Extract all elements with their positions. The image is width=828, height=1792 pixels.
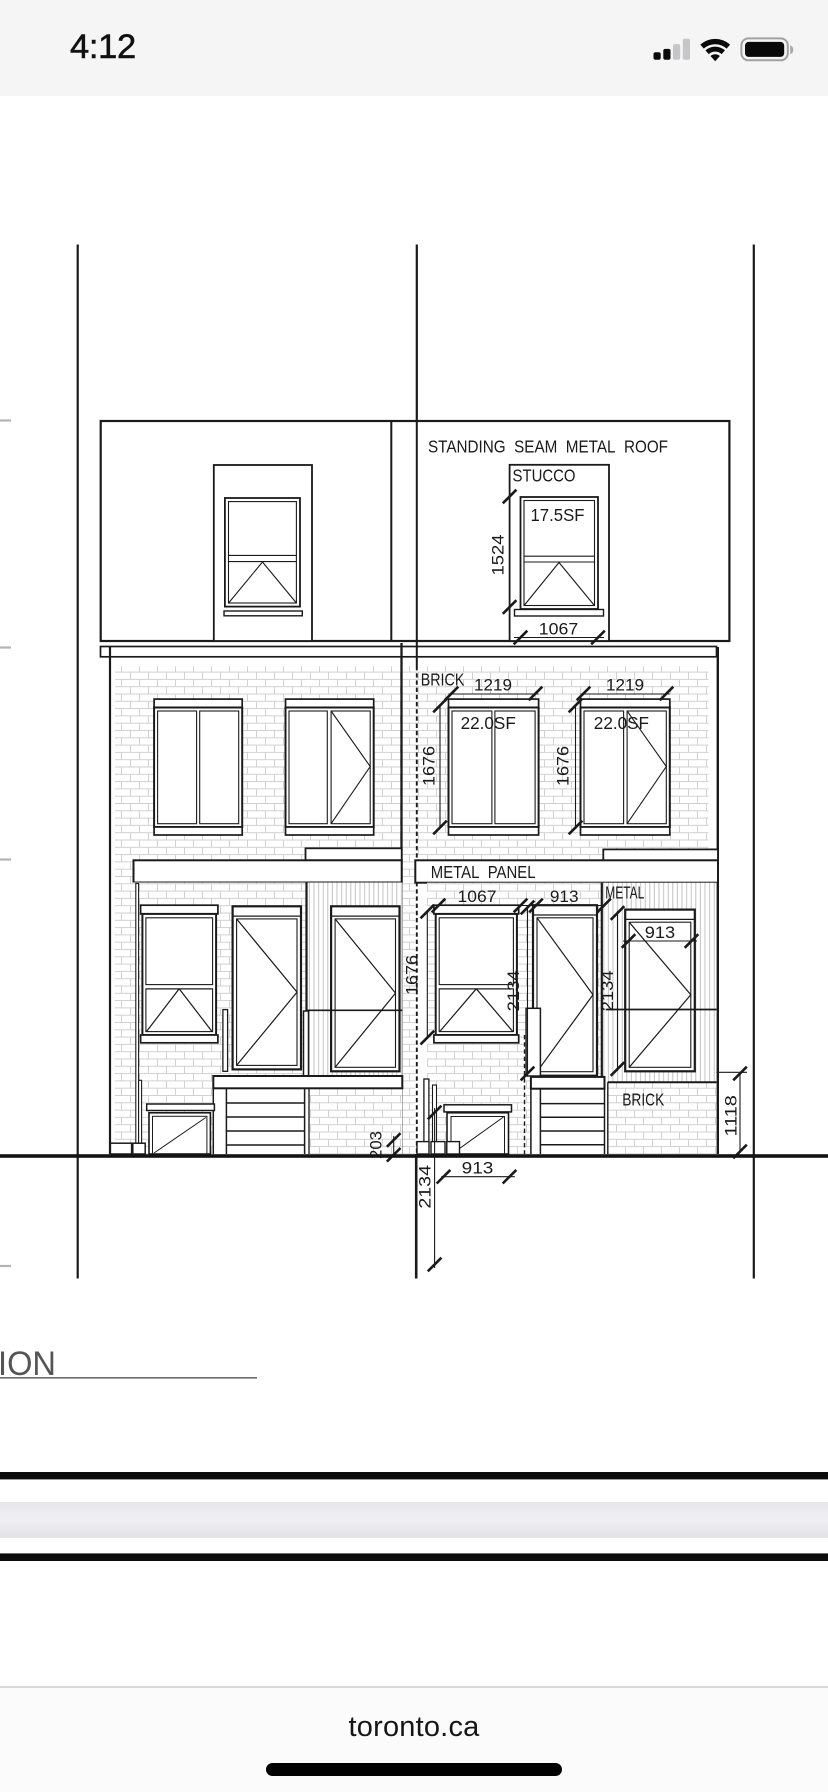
svg-text:1676: 1676 xyxy=(420,746,439,786)
svg-text:22.0SF: 22.0SF xyxy=(461,713,516,733)
svg-text:913: 913 xyxy=(462,1159,494,1178)
svg-text:22.0SF: 22.0SF xyxy=(594,713,649,733)
svg-text:2134: 2134 xyxy=(504,970,523,1011)
svg-text:2134: 2134 xyxy=(598,970,617,1011)
svg-text:1676: 1676 xyxy=(403,955,422,995)
svg-text:STUCCO: STUCCO xyxy=(513,466,576,486)
svg-text:1676: 1676 xyxy=(554,746,573,786)
svg-text:METAL PANEL: METAL PANEL xyxy=(431,862,536,882)
svg-text:STANDING SEAM METAL ROOF: STANDING SEAM METAL ROOF xyxy=(428,437,668,457)
svg-text:2134: 2134 xyxy=(416,1165,435,1209)
svg-text:1219: 1219 xyxy=(474,676,512,695)
svg-text:913: 913 xyxy=(645,923,675,942)
svg-text:1067: 1067 xyxy=(458,887,497,906)
svg-text:BRICK: BRICK xyxy=(421,669,465,689)
svg-text:BRICK: BRICK xyxy=(622,1089,664,1109)
svg-text:1524: 1524 xyxy=(489,535,508,576)
svg-text:913: 913 xyxy=(550,887,579,906)
svg-text:17.5SF: 17.5SF xyxy=(531,505,585,525)
svg-text:1118: 1118 xyxy=(722,1095,741,1136)
svg-text:METAL: METAL xyxy=(605,882,644,902)
svg-text:1067: 1067 xyxy=(539,620,578,639)
svg-text:1219: 1219 xyxy=(606,676,644,695)
